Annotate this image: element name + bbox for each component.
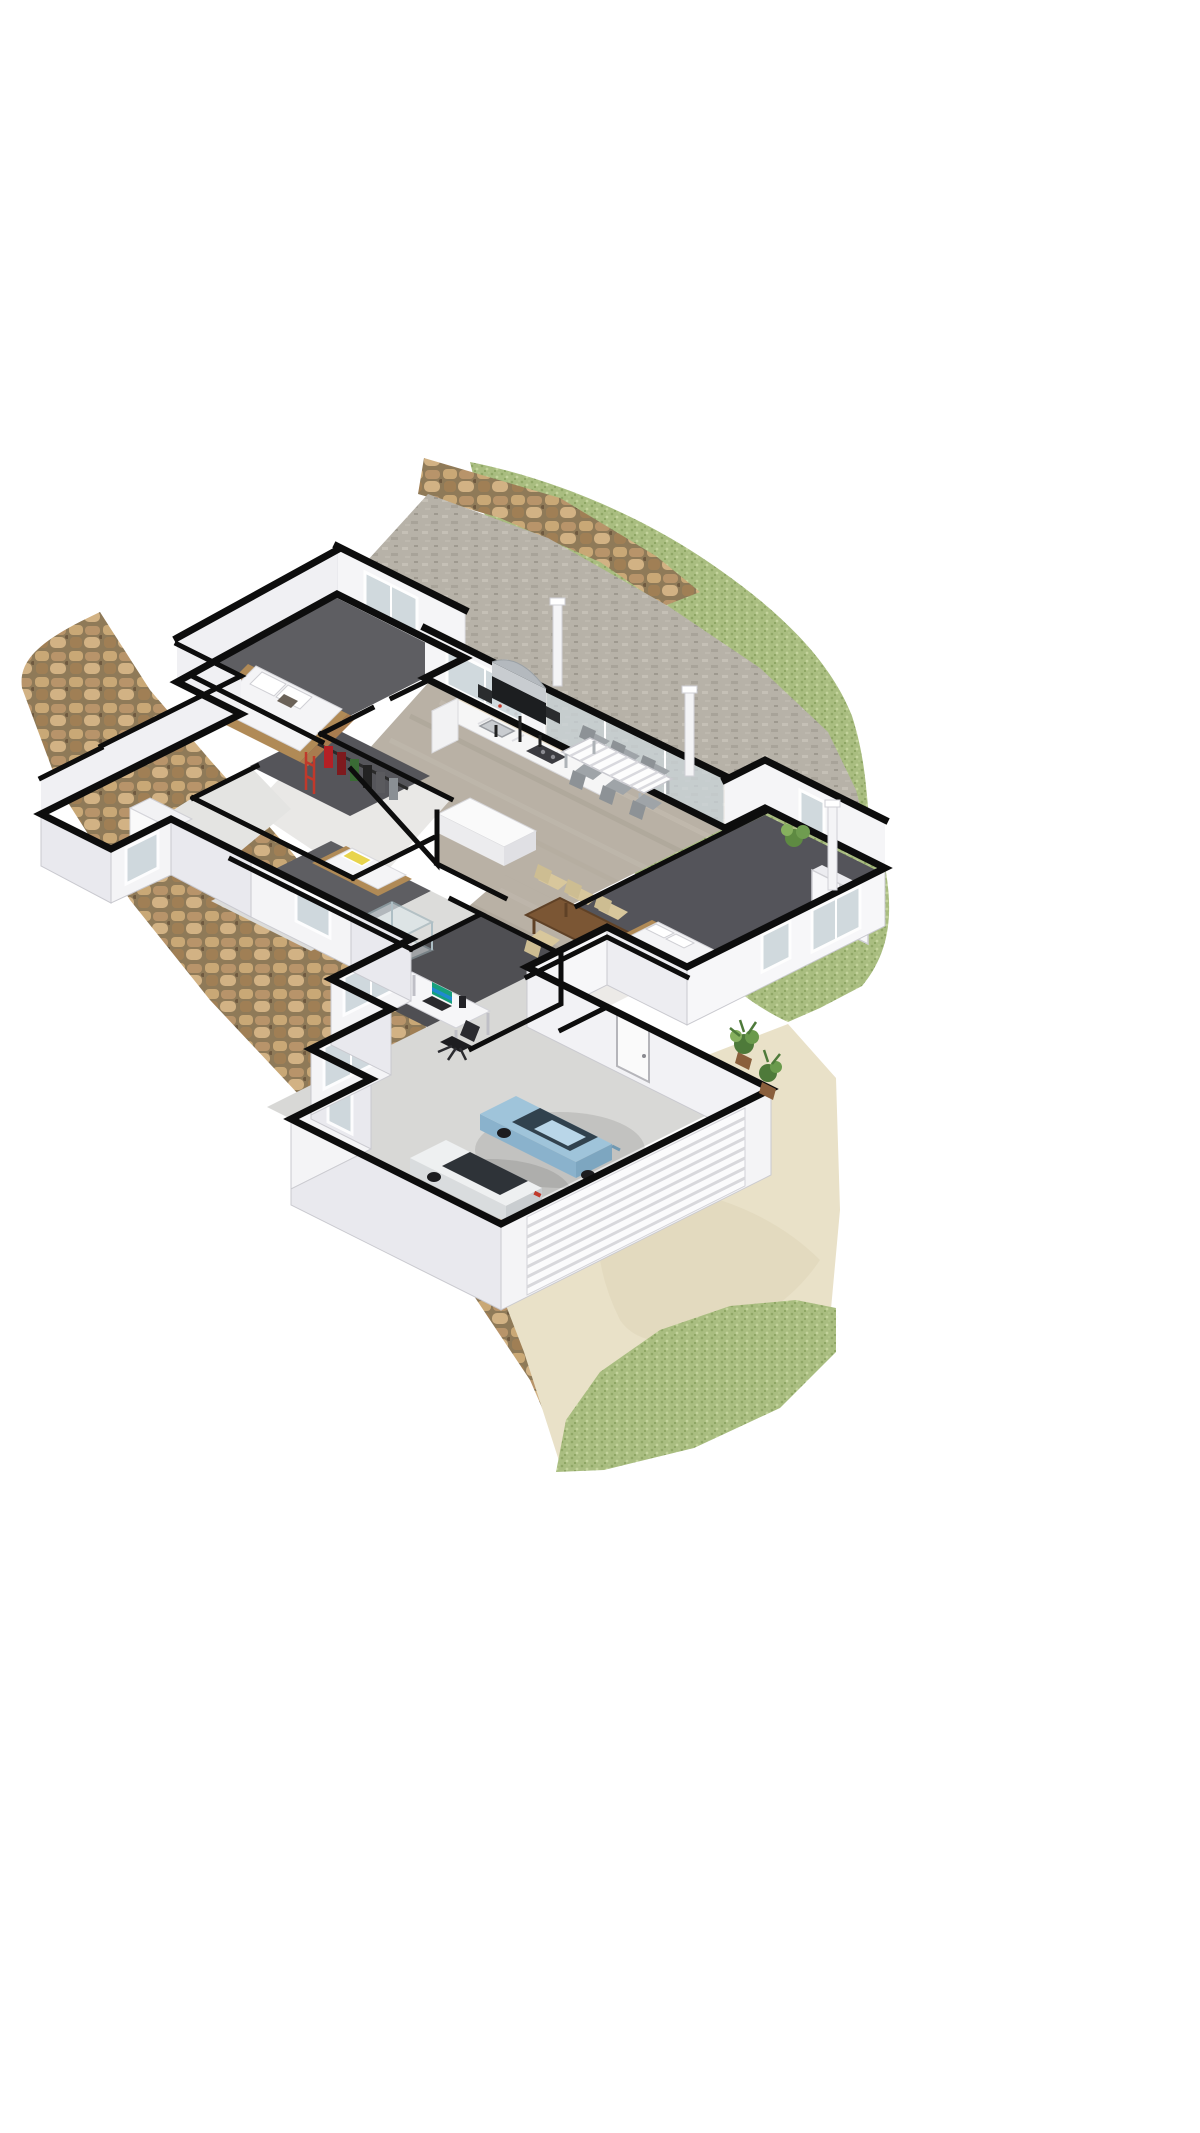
desk-phone xyxy=(459,996,466,1008)
floorplan-render xyxy=(0,0,1200,2133)
